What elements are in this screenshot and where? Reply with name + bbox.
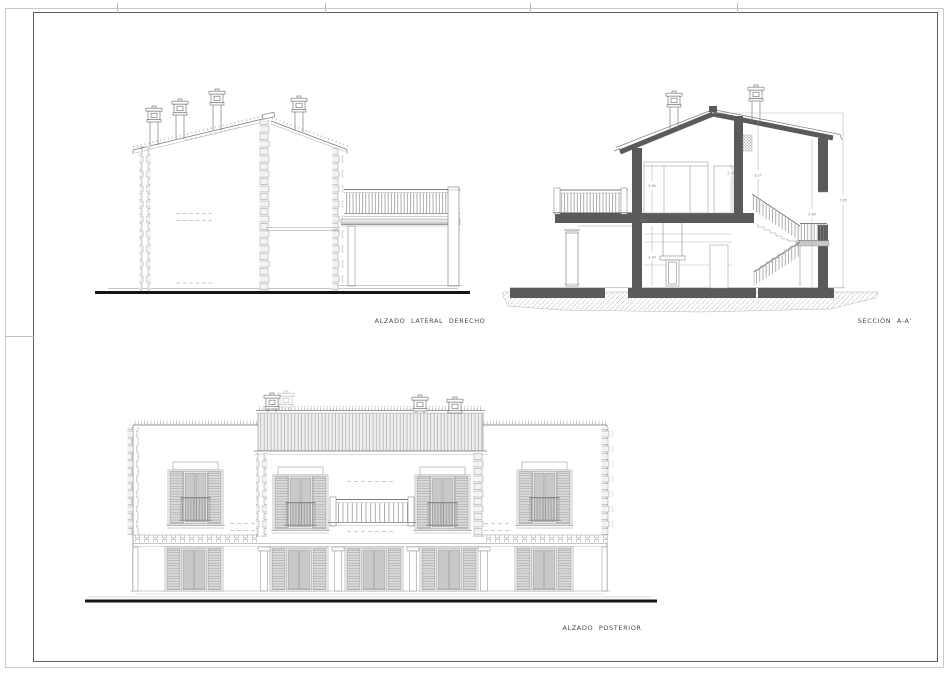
upper-floor-interior bbox=[644, 162, 733, 213]
rear-elevation-label: ALZADO POSTERIOR bbox=[527, 624, 677, 632]
window-central-left bbox=[271, 467, 330, 533]
window-right-wing bbox=[515, 462, 574, 528]
dim-ridge: 3.27 bbox=[754, 174, 762, 178]
dim-slab: 0.40 bbox=[639, 219, 647, 223]
window-central-right bbox=[413, 467, 472, 533]
side-elevation-drawing bbox=[90, 80, 490, 315]
dim-upper-wall: 2.75 bbox=[727, 172, 735, 176]
dim-stair-side: 5.60 bbox=[808, 213, 816, 217]
door-central-1 bbox=[270, 547, 328, 591]
dim-total-height: 7.65 bbox=[839, 199, 847, 203]
ground-floor bbox=[133, 547, 607, 591]
door-central-2 bbox=[345, 547, 403, 591]
fireplace bbox=[660, 223, 685, 286]
door-left-wing bbox=[165, 547, 223, 591]
chimneys bbox=[146, 89, 307, 145]
fold-tick bbox=[530, 3, 531, 13]
ground-floor-interior bbox=[644, 223, 732, 288]
door-central-3 bbox=[420, 547, 478, 591]
fold-mark bbox=[5, 336, 34, 337]
fold-tick bbox=[117, 3, 118, 13]
ground-soil bbox=[503, 288, 878, 312]
ground-line bbox=[95, 289, 470, 293]
gable-wall bbox=[140, 120, 344, 291]
central-balcony bbox=[328, 497, 416, 526]
side-elevation-label: ALZADO LATERAL DERECHO bbox=[340, 317, 520, 325]
dim-upper-room: 2.60 bbox=[648, 184, 656, 188]
left-terrace bbox=[553, 188, 632, 286]
plan-sheet: 2.60 0.40 2.40 2.75 3.27 5.60 7.65 bbox=[0, 0, 950, 675]
section-label: SECCIÓN A-A' bbox=[790, 317, 912, 325]
section-drawing: 2.60 0.40 2.40 2.75 3.27 5.60 7.65 bbox=[500, 60, 940, 325]
door-right-wing bbox=[515, 547, 573, 591]
staircase bbox=[752, 194, 829, 286]
floor-band bbox=[133, 535, 607, 547]
ground-line bbox=[85, 591, 657, 601]
window-left-wing bbox=[166, 462, 225, 528]
dim-ground-room: 2.40 bbox=[648, 256, 656, 260]
rear-elevation-drawing bbox=[80, 385, 660, 620]
roof bbox=[133, 112, 349, 154]
terrace bbox=[338, 187, 462, 286]
fold-tick bbox=[737, 3, 738, 13]
fold-tick bbox=[325, 3, 326, 13]
